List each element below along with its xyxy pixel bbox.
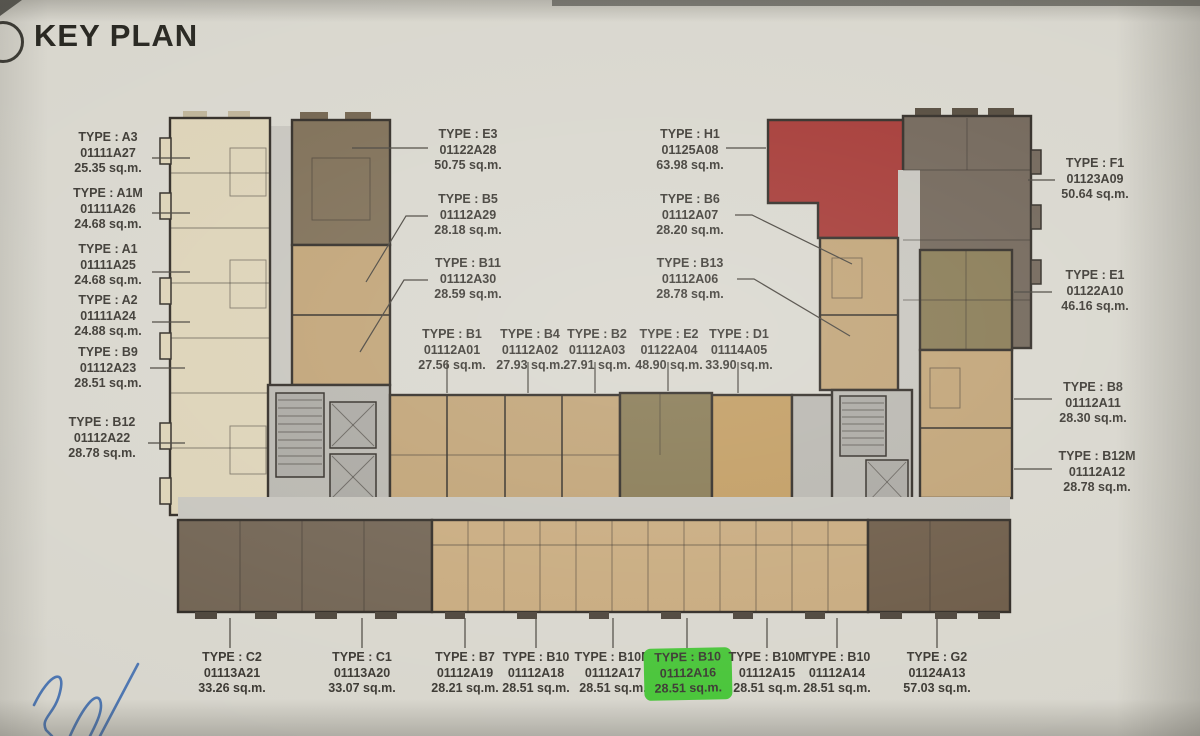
unit-area: 33.07 sq.m. [302, 681, 422, 697]
unit-code: 01114A05 [679, 343, 799, 359]
unit-type: TYPE : A1M [48, 186, 168, 202]
unit-label-c1: TYPE : C1 01113A20 33.07 sq.m. [302, 650, 422, 697]
unit-label-b13: TYPE : B13 01112A06 28.78 sq.m. [630, 256, 750, 303]
unit-area: 28.51 sq.m. [48, 376, 168, 392]
unit-block-d1 [712, 395, 792, 500]
unit-label-b9: TYPE : B9 01112A23 28.51 sq.m. [48, 345, 168, 392]
unit-type: TYPE : A1 [48, 242, 168, 258]
unit-type: TYPE : B8 [1033, 380, 1153, 396]
unit-code: 01112A07 [630, 208, 750, 224]
unit-block-g2 [868, 520, 1010, 612]
unit-code: 01122A10 [1035, 284, 1155, 300]
stair-core-right [832, 390, 912, 512]
pen-scribble [34, 664, 138, 736]
unit-type: TYPE : B11 [408, 256, 528, 272]
unit-label-c2: TYPE : C2 01113A21 33.26 sq.m. [172, 650, 292, 697]
unit-label-e3: TYPE : E3 01122A28 50.75 sq.m. [408, 127, 528, 174]
unit-area: 28.59 sq.m. [408, 287, 528, 303]
unit-area: 24.68 sq.m. [48, 273, 168, 289]
unit-label-e1: TYPE : E1 01122A10 46.16 sq.m. [1035, 268, 1155, 315]
bottom-bar [178, 497, 1010, 619]
unit-label-a1m: TYPE : A1M 01111A26 24.68 sq.m. [48, 186, 168, 233]
unit-code: 01112A12 [1037, 465, 1157, 481]
unit-label-f1: TYPE : F1 01123A09 50.64 sq.m. [1035, 156, 1155, 203]
unit-block-h1-red [768, 120, 903, 238]
unit-type: TYPE : B9 [48, 345, 168, 361]
unit-area: 28.78 sq.m. [1037, 480, 1157, 496]
unit-code: 01112A23 [48, 361, 168, 377]
unit-type: TYPE : B13 [630, 256, 750, 272]
unit-block-e3 [292, 120, 390, 245]
unit-type: TYPE : E1 [1035, 268, 1155, 284]
unit-type: TYPE : E3 [408, 127, 528, 143]
unit-area: 46.16 sq.m. [1035, 299, 1155, 315]
unit-label-a3: TYPE : A3 01111A27 25.35 sq.m. [48, 130, 168, 177]
unit-code: 01122A28 [408, 143, 528, 159]
unit-type: TYPE : F1 [1035, 156, 1155, 172]
unit-label-a2: TYPE : A2 01111A24 24.88 sq.m. [48, 293, 168, 340]
unit-label-d1: TYPE : D1 01114A05 33.90 sq.m. [679, 327, 799, 374]
unit-block-b8-b12m [920, 350, 1012, 498]
unit-code: 01112A06 [630, 272, 750, 288]
unit-type: TYPE : B6 [630, 192, 750, 208]
unit-label-g2: TYPE : G2 01124A13 57.03 sq.m. [877, 650, 997, 697]
unit-area: 63.98 sq.m. [630, 158, 750, 174]
unit-type: TYPE : H1 [630, 127, 750, 143]
unit-type: TYPE : A2 [48, 293, 168, 309]
unit-label-b12m: TYPE : B12M 01112A12 28.78 sq.m. [1037, 449, 1157, 496]
unit-type: TYPE : B12 [42, 415, 162, 431]
unit-code: 01111A27 [48, 146, 168, 162]
unit-column-a-types [170, 118, 270, 515]
unit-label-b6: TYPE : B6 01112A07 28.20 sq.m. [630, 192, 750, 239]
unit-label-b12: TYPE : B12 01112A22 28.78 sq.m. [42, 415, 162, 462]
unit-code: 01111A24 [48, 309, 168, 325]
unit-label-b5: TYPE : B5 01112A29 28.18 sq.m. [408, 192, 528, 239]
unit-code: 01112A11 [1033, 396, 1153, 412]
header: KEY PLAN [34, 18, 198, 54]
photo-edge-artifacts [0, 0, 1200, 16]
unit-area: 28.20 sq.m. [630, 223, 750, 239]
unit-area: 24.68 sq.m. [48, 217, 168, 233]
unit-label-b11: TYPE : B11 01112A30 28.59 sq.m. [408, 256, 528, 303]
unit-code: 01112A22 [42, 431, 162, 447]
unit-block-e2 [620, 393, 712, 500]
unit-label-a1: TYPE : A1 01111A25 24.68 sq.m. [48, 242, 168, 289]
unit-area: 24.88 sq.m. [48, 324, 168, 340]
unit-type: TYPE : B12M [1037, 449, 1157, 465]
unit-code: 01112A29 [408, 208, 528, 224]
unit-code: 01112A30 [408, 272, 528, 288]
unit-area: 28.78 sq.m. [630, 287, 750, 303]
page-title: KEY PLAN [34, 18, 198, 54]
unit-area: 57.03 sq.m. [877, 681, 997, 697]
unit-area: 28.78 sq.m. [42, 446, 162, 462]
unit-block-c2-c1 [178, 520, 432, 612]
unit-area: 50.64 sq.m. [1035, 187, 1155, 203]
unit-type: TYPE : B5 [408, 192, 528, 208]
unit-area: 50.75 sq.m. [408, 158, 528, 174]
unit-block-b7-b10-row [432, 520, 868, 612]
unit-type: TYPE : G2 [877, 650, 997, 666]
unit-code: 01111A26 [48, 202, 168, 218]
unit-area: 28.18 sq.m. [408, 223, 528, 239]
unit-area: 25.35 sq.m. [48, 161, 168, 177]
unit-code: 01113A21 [172, 666, 292, 682]
unit-code: 01111A25 [48, 258, 168, 274]
unit-label-h1: TYPE : H1 01125A08 63.98 sq.m. [630, 127, 750, 174]
unit-code: 01124A13 [877, 666, 997, 682]
unit-label-b8: TYPE : B8 01112A11 28.30 sq.m. [1033, 380, 1153, 427]
unit-area: 33.26 sq.m. [172, 681, 292, 697]
unit-type: TYPE : D1 [679, 327, 799, 343]
unit-area: 28.30 sq.m. [1033, 411, 1153, 427]
unit-code: 01123A09 [1035, 172, 1155, 188]
unit-area: 33.90 sq.m. [679, 358, 799, 374]
unit-type: TYPE : C2 [172, 650, 292, 666]
unit-type: TYPE : A3 [48, 130, 168, 146]
unit-code: 01113A20 [302, 666, 422, 682]
unit-type: TYPE : C1 [302, 650, 422, 666]
center-units [390, 393, 834, 500]
stair-core-left [268, 385, 390, 513]
unit-code: 01125A08 [630, 143, 750, 159]
